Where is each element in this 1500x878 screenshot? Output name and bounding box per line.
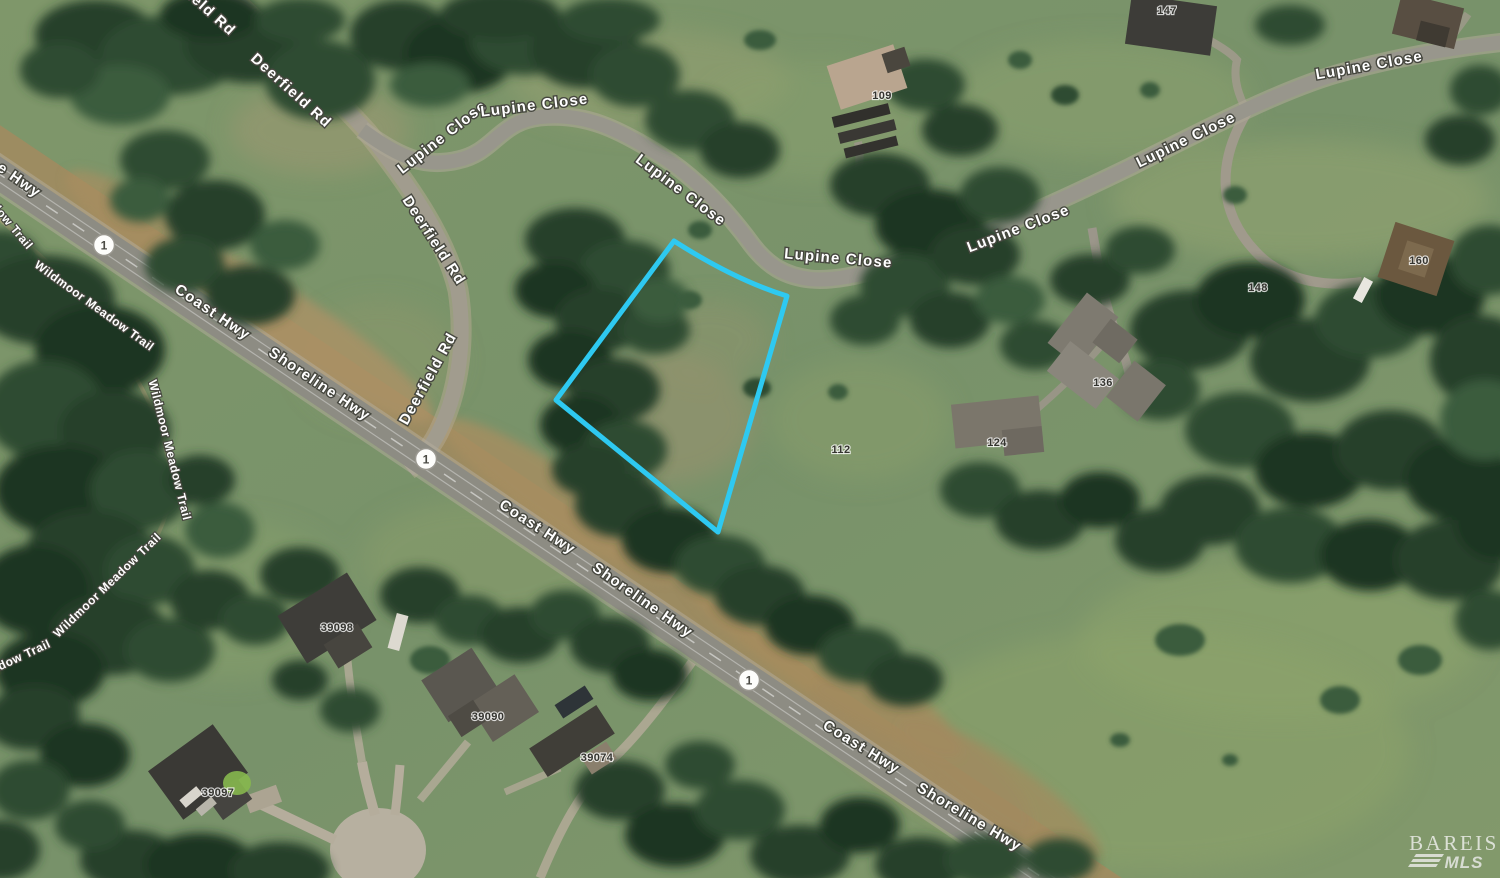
satellite-map-canvas[interactable]: Deerfield Rd Deerfield Rd Deerfield Rd D… [0,0,1500,878]
parcel-number: 39097 [202,787,235,799]
route-1-shield-label: 1 [746,674,753,688]
watermark-brand-text: BAREIS [1409,831,1499,855]
parcel-number: 112 [832,444,851,456]
parcel-number: 148 [1248,282,1268,294]
parcel-number: 136 [1093,377,1113,389]
parcel-number: 39090 [472,711,505,723]
route-1-shield: 1 [416,449,437,470]
watermark-mls-text: MLS [1445,853,1484,872]
satellite-map[interactable]: Deerfield Rd Deerfield Rd Deerfield Rd D… [0,0,1500,878]
route-1-shield-label: 1 [423,453,430,467]
route-1-shield: 1 [739,670,760,691]
route-1-shield: 1 [94,235,115,256]
parcel-number: 39074 [581,752,614,764]
parcel-number: 147 [1157,5,1177,17]
parcel-number: 39098 [321,622,354,634]
parcel-number: 109 [872,90,892,102]
route-1-shield-label: 1 [101,239,108,253]
parcel-number: 160 [1409,255,1429,267]
parcel-number: 124 [987,437,1007,449]
